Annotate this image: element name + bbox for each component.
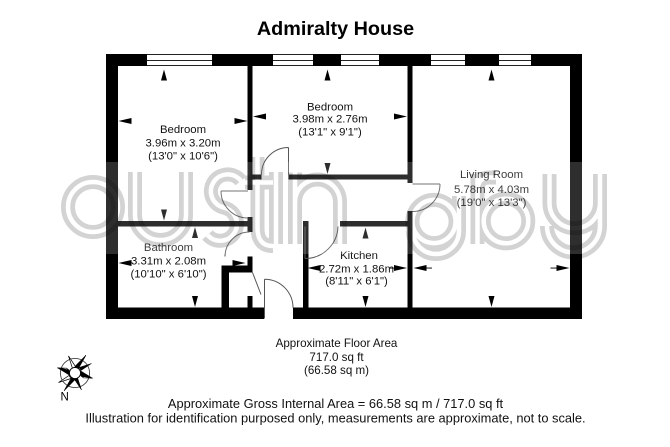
svg-text:Approximate Gross Internal Are: Approximate Gross Internal Area = 66.58 … <box>168 396 504 411</box>
svg-text:Illustration for identificatio: Illustration for identification purposed… <box>85 411 585 426</box>
svg-text:(66.58 sq m): (66.58 sq m) <box>304 364 369 377</box>
svg-text:Admiralty House: Admiralty House <box>257 18 414 40</box>
svg-text:(10'10" x 6'10"): (10'10" x 6'10") <box>130 269 206 281</box>
svg-text:Approximate Floor Area: Approximate Floor Area <box>276 337 398 350</box>
svg-text:3.98m x 2.76m: 3.98m x 2.76m <box>292 113 367 125</box>
svg-text:Bedroom: Bedroom <box>160 124 206 136</box>
svg-text:N: N <box>61 392 69 404</box>
svg-text:Bedroom: Bedroom <box>307 101 353 113</box>
svg-text:(8'11" x 6'1"): (8'11" x 6'1") <box>325 276 388 288</box>
svg-text:717.0 sq ft: 717.0 sq ft <box>309 351 364 364</box>
svg-text:(13'1" x 9'1"): (13'1" x 9'1") <box>298 127 362 139</box>
